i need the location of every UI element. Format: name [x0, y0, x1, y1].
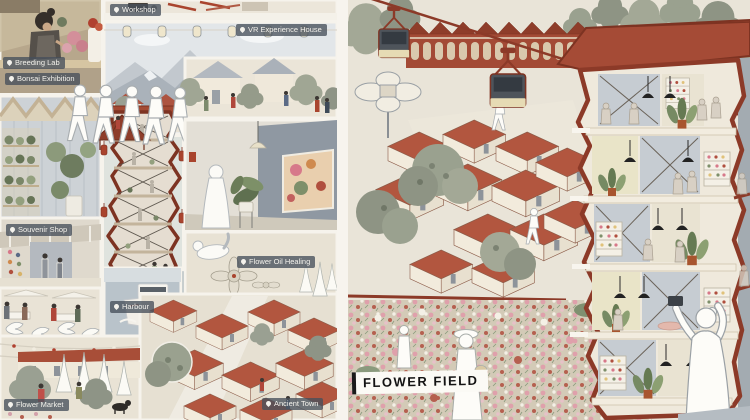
- illustration-canvas: Breeding Lab Workshop VR Experience Hous…: [0, 0, 750, 420]
- label-text: VR Experience House: [248, 26, 322, 34]
- label-workshop: Workshop: [110, 4, 161, 16]
- location-pin-icon: [113, 6, 120, 13]
- label-text: Workshop: [122, 6, 156, 14]
- vignette-street: [175, 58, 337, 118]
- label-text: Bonsai Exhibition: [17, 75, 75, 83]
- label-text: Souvenir Shop: [18, 226, 67, 234]
- label-text: Breeding Lab: [15, 59, 60, 67]
- right-perspective: [348, 0, 750, 420]
- label-vr-experience-house: VR Experience House: [236, 24, 327, 36]
- location-pin-icon: [7, 401, 14, 408]
- location-pin-icon: [9, 226, 16, 233]
- label-flower-oil-healing: Flower Oil Healing: [237, 256, 315, 268]
- label-ancient-town: Ancient Town: [262, 398, 323, 410]
- label-breeding-lab: Breeding Lab: [3, 57, 65, 69]
- vignette-market-people: [0, 288, 101, 340]
- panel-gutter: [337, 0, 348, 420]
- label-text: Harbour: [122, 303, 149, 311]
- location-pin-icon: [6, 59, 13, 66]
- label-text: Flower Market: [16, 401, 64, 409]
- vignette-gallery: [185, 120, 337, 230]
- label-bonsai-exhibition: Bonsai Exhibition: [5, 73, 80, 85]
- location-pin-icon: [240, 258, 247, 265]
- label-flower-field: FLOWER FIELD: [352, 370, 488, 395]
- location-pin-icon: [113, 303, 120, 310]
- label-flower-market: Flower Market: [4, 399, 69, 411]
- location-pin-icon: [239, 26, 246, 33]
- label-harbour: Harbour: [110, 301, 154, 313]
- label-text: Flower Oil Healing: [249, 258, 310, 266]
- location-pin-icon: [265, 400, 272, 407]
- label-souvenir-shop: Souvenir Shop: [6, 224, 72, 236]
- label-text: Ancient Town: [274, 400, 318, 408]
- location-pin-icon: [8, 75, 15, 82]
